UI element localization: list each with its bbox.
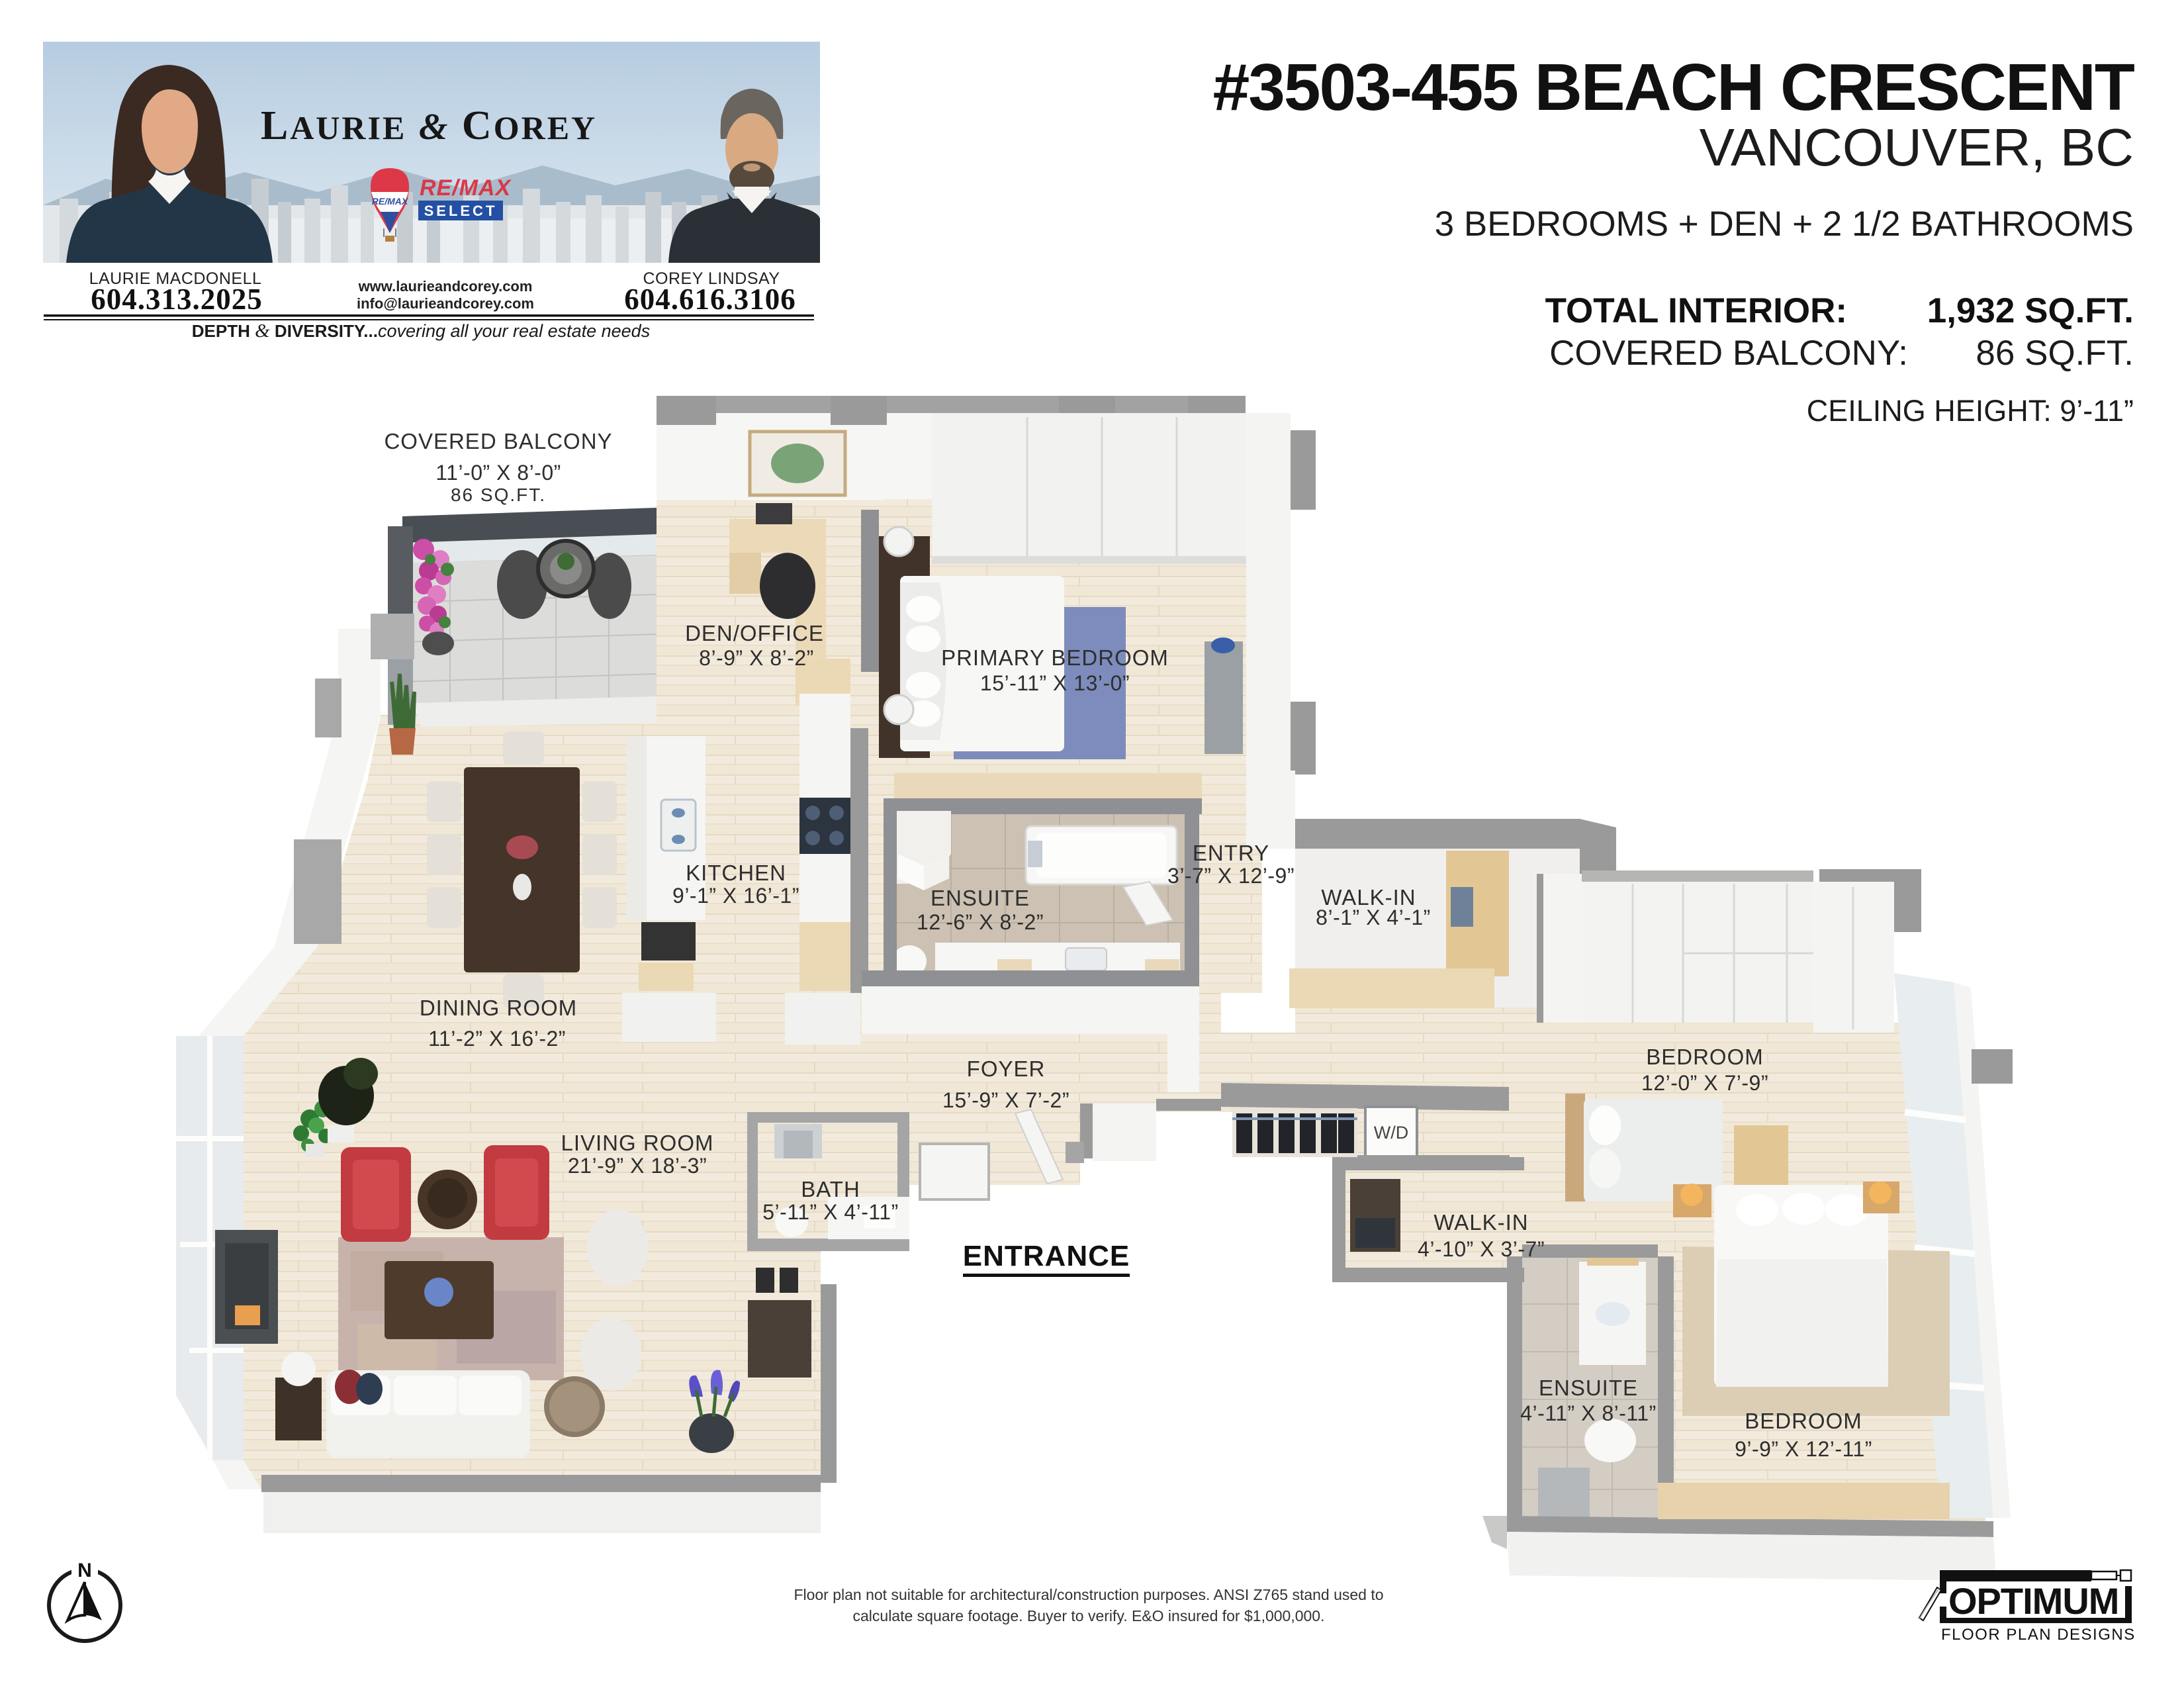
svg-text:RE/MAX: RE/MAX [372,196,409,207]
svg-text:DINING ROOM: DINING ROOM [420,996,577,1020]
svg-text:4’-11” X 8’-11”: 4’-11” X 8’-11” [1520,1401,1657,1425]
svg-text:8’-9” X 8’-2”: 8’-9” X 8’-2” [699,646,814,670]
svg-text:21’-9” X 18’-3”: 21’-9” X 18’-3” [568,1154,707,1178]
svg-text:ENSUITE: ENSUITE [931,886,1030,910]
svg-text:15’-9” X 7’-2”: 15’-9” X 7’-2” [942,1088,1069,1112]
svg-text:12’-6” X 8’-2”: 12’-6” X 8’-2” [917,910,1044,934]
svg-text:BEDROOM: BEDROOM [1646,1045,1764,1069]
svg-text:COVERED BALCONY: COVERED BALCONY [384,429,612,453]
svg-text:LAURIE & COREY: LAURIE & COREY [261,103,597,148]
svg-text:3’-7” X 12’-9”: 3’-7” X 12’-9” [1167,864,1295,888]
svg-text:CEILING HEIGHT: 9’-11”: CEILING HEIGHT: 9’-11” [1807,394,2134,428]
svg-text:WALK-IN: WALK-IN [1433,1210,1528,1235]
svg-text:TOTAL INTERIOR:: TOTAL INTERIOR: [1545,291,1847,330]
svg-text:ENTRANCE: ENTRANCE [963,1240,1130,1272]
svg-text:8’-1” X 4’-1”: 8’-1” X 4’-1” [1316,906,1431,929]
svg-text:OPTIMUM: OPTIMUM [1948,1580,2118,1622]
svg-text:4’-10” X 3’-7”: 4’-10” X 3’-7” [1418,1237,1545,1261]
svg-text:ENTRY: ENTRY [1193,841,1269,865]
svg-text:W/D: W/D [1374,1123,1408,1143]
svg-text:5’-11” X 4’-11”: 5’-11” X 4’-11” [762,1200,899,1224]
svg-text:KITCHEN: KITCHEN [686,861,786,885]
svg-text:ENSUITE: ENSUITE [1539,1376,1638,1400]
svg-text:604.616.3106: 604.616.3106 [624,283,796,316]
svg-text:15’-11” X 13’-0”: 15’-11” X 13’-0” [980,671,1130,695]
svg-text:12’-0” X 7’-9”: 12’-0” X 7’-9” [1641,1071,1768,1095]
svg-text:86 SQ.FT.: 86 SQ.FT. [451,485,546,505]
svg-text:www.laurieandcorey.com: www.laurieandcorey.com [358,278,533,295]
svg-text:BATH: BATH [801,1177,860,1201]
svg-text:info@laurieandcorey.com: info@laurieandcorey.com [357,295,534,312]
svg-text:COVERED BALCONY:: COVERED BALCONY: [1549,334,1908,373]
svg-text:11’-2” X 16’-2”: 11’-2” X 16’-2” [428,1027,566,1051]
svg-text:RE/MAX: RE/MAX [420,175,512,201]
svg-text:604.313.2025: 604.313.2025 [91,283,263,316]
svg-text:LIVING ROOM: LIVING ROOM [561,1131,713,1155]
svg-text:FOYER: FOYER [967,1056,1046,1081]
svg-text:9’-1” X 16’-1”: 9’-1” X 16’-1” [672,884,799,908]
svg-text:11’-0” X 8’-0”: 11’-0” X 8’-0” [435,461,561,485]
svg-text:DEPTH & DIVERSITY...covering a: DEPTH & DIVERSITY...covering all your re… [192,320,650,342]
svg-text:FLOOR PLAN DESIGNS: FLOOR PLAN DESIGNS [1941,1626,2136,1644]
svg-text:86 SQ.FT.: 86 SQ.FT. [1976,334,2134,373]
svg-text:3 BEDROOMS + DEN + 2 1/2 BATHR: 3 BEDROOMS + DEN + 2 1/2 BATHROOMS [1435,205,2134,244]
svg-text:#3503-455 BEACH CRESCENT: #3503-455 BEACH CRESCENT [1213,50,2135,124]
svg-text:BEDROOM: BEDROOM [1745,1409,1862,1433]
svg-text:PRIMARY BEDROOM: PRIMARY BEDROOM [941,645,1169,670]
svg-text:9’-9” X 12’-11”: 9’-9” X 12’-11” [1735,1437,1872,1461]
svg-text:VANCOUVER, BC: VANCOUVER, BC [1700,118,2134,177]
svg-text:calculate square footage. Buye: calculate square footage. Buyer to verif… [853,1607,1325,1624]
svg-text:N: N [77,1560,92,1581]
svg-text:Floor plan not suitable for ar: Floor plan not suitable for architectura… [794,1586,1383,1603]
svg-text:1,932 SQ.FT.: 1,932 SQ.FT. [1927,291,2134,330]
svg-text:DEN/OFFICE: DEN/OFFICE [685,621,824,645]
svg-text:SELECT: SELECT [424,203,498,219]
